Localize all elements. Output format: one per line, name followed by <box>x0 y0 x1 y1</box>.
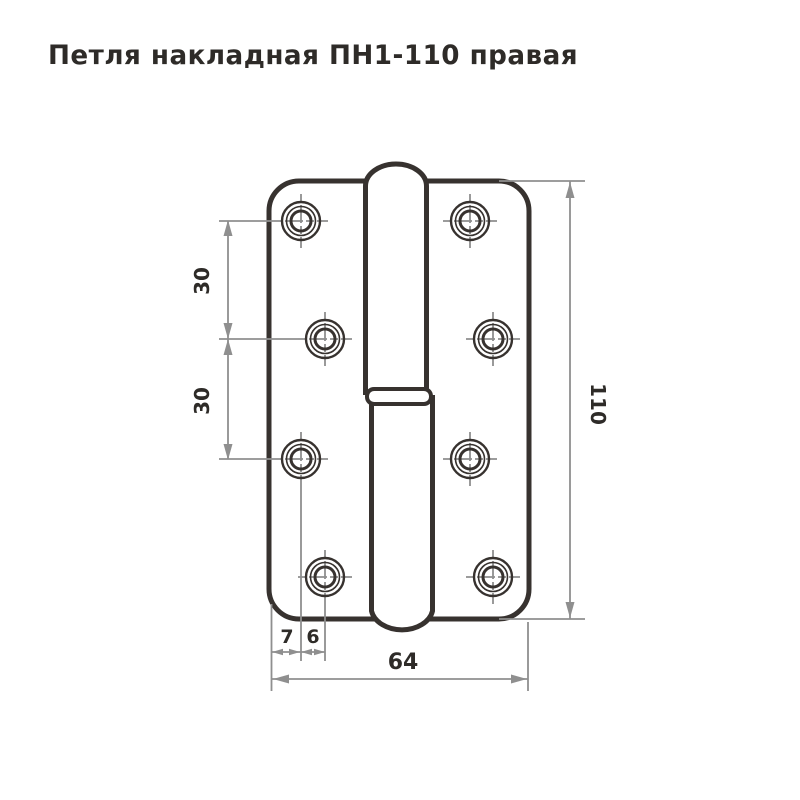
hinge-barrel-lower <box>372 395 433 630</box>
dim-label-hole-spacing-upper: 30 <box>190 267 214 295</box>
dim-label-overall-width: 64 <box>388 650 419 675</box>
dim-label-edge-to-first-hole: 7 <box>280 626 293 648</box>
hinge-barrel-joint <box>367 389 431 404</box>
dim-label-overall-height: 110 <box>586 383 610 425</box>
dim-label-hole-column-offset: 6 <box>306 626 319 648</box>
dim-label-hole-spacing-lower: 30 <box>190 387 214 415</box>
drawing-sheet: Петля накладная ПН1-110 правая <box>0 0 800 800</box>
hinge-technical-drawing: 30 30 110 64 7 6 <box>0 0 800 800</box>
hinge-barrel-upper <box>366 164 427 395</box>
